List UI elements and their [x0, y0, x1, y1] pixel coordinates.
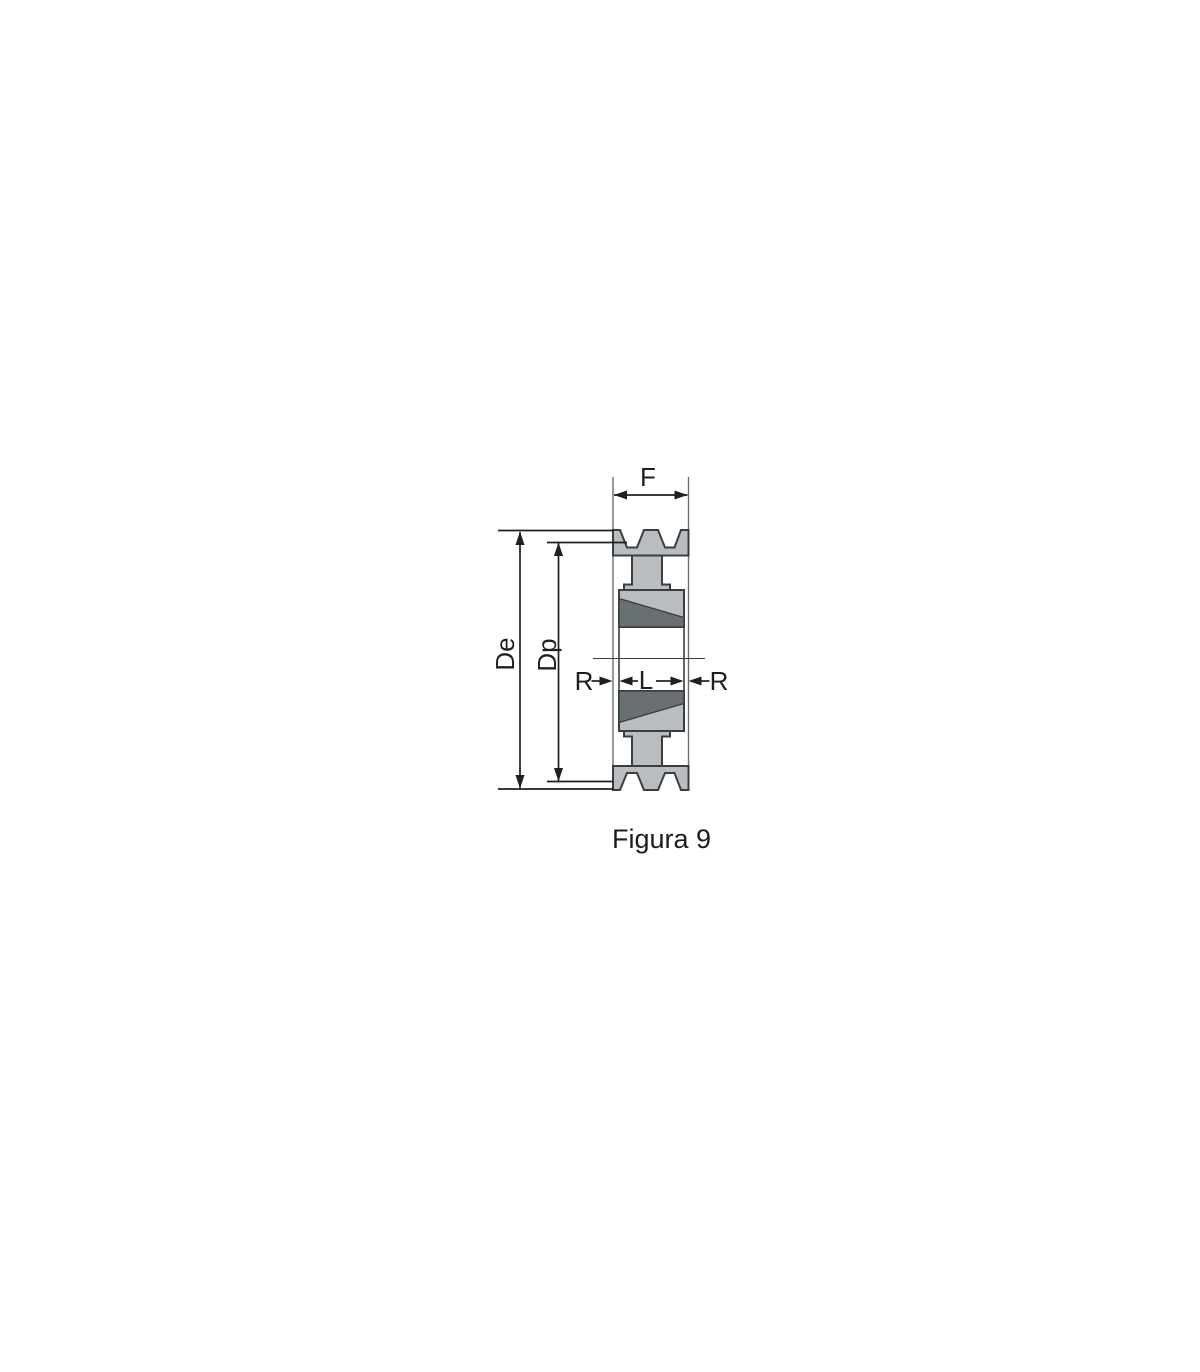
de-label: De — [490, 637, 520, 670]
pulley-cross-section-diagram: F De Dp R — [0, 0, 1200, 1372]
lower-web — [624, 731, 670, 766]
page: F De Dp R — [0, 0, 1200, 1372]
figure-caption: Figura 9 — [612, 824, 711, 854]
f-right-arrowhead-icon — [675, 491, 688, 500]
l-left-arrowhead-icon — [620, 677, 633, 686]
pulley-body — [613, 530, 689, 790]
r-left-label: R — [575, 666, 594, 696]
upper-web — [624, 556, 670, 591]
dimension-f: F — [614, 462, 688, 500]
bottom-rim-grooves — [613, 766, 689, 790]
de-top-arrowhead-icon — [516, 532, 525, 546]
de-bottom-arrowhead-icon — [516, 775, 525, 789]
r-right-arrowhead-icon — [689, 677, 702, 686]
dimension-r-right: R — [689, 666, 729, 696]
r-right-label: R — [710, 666, 729, 696]
f-label: F — [640, 462, 656, 492]
l-right-arrowhead-icon — [671, 677, 684, 686]
f-left-arrowhead-icon — [614, 491, 627, 500]
r-left-arrowhead-icon — [600, 677, 613, 686]
dp-label: Dp — [532, 638, 562, 671]
dp-bottom-arrowhead-icon — [554, 768, 563, 782]
l-label: L — [639, 665, 653, 695]
dimension-r-left: R — [575, 666, 613, 696]
dp-top-arrowhead-icon — [554, 543, 563, 557]
